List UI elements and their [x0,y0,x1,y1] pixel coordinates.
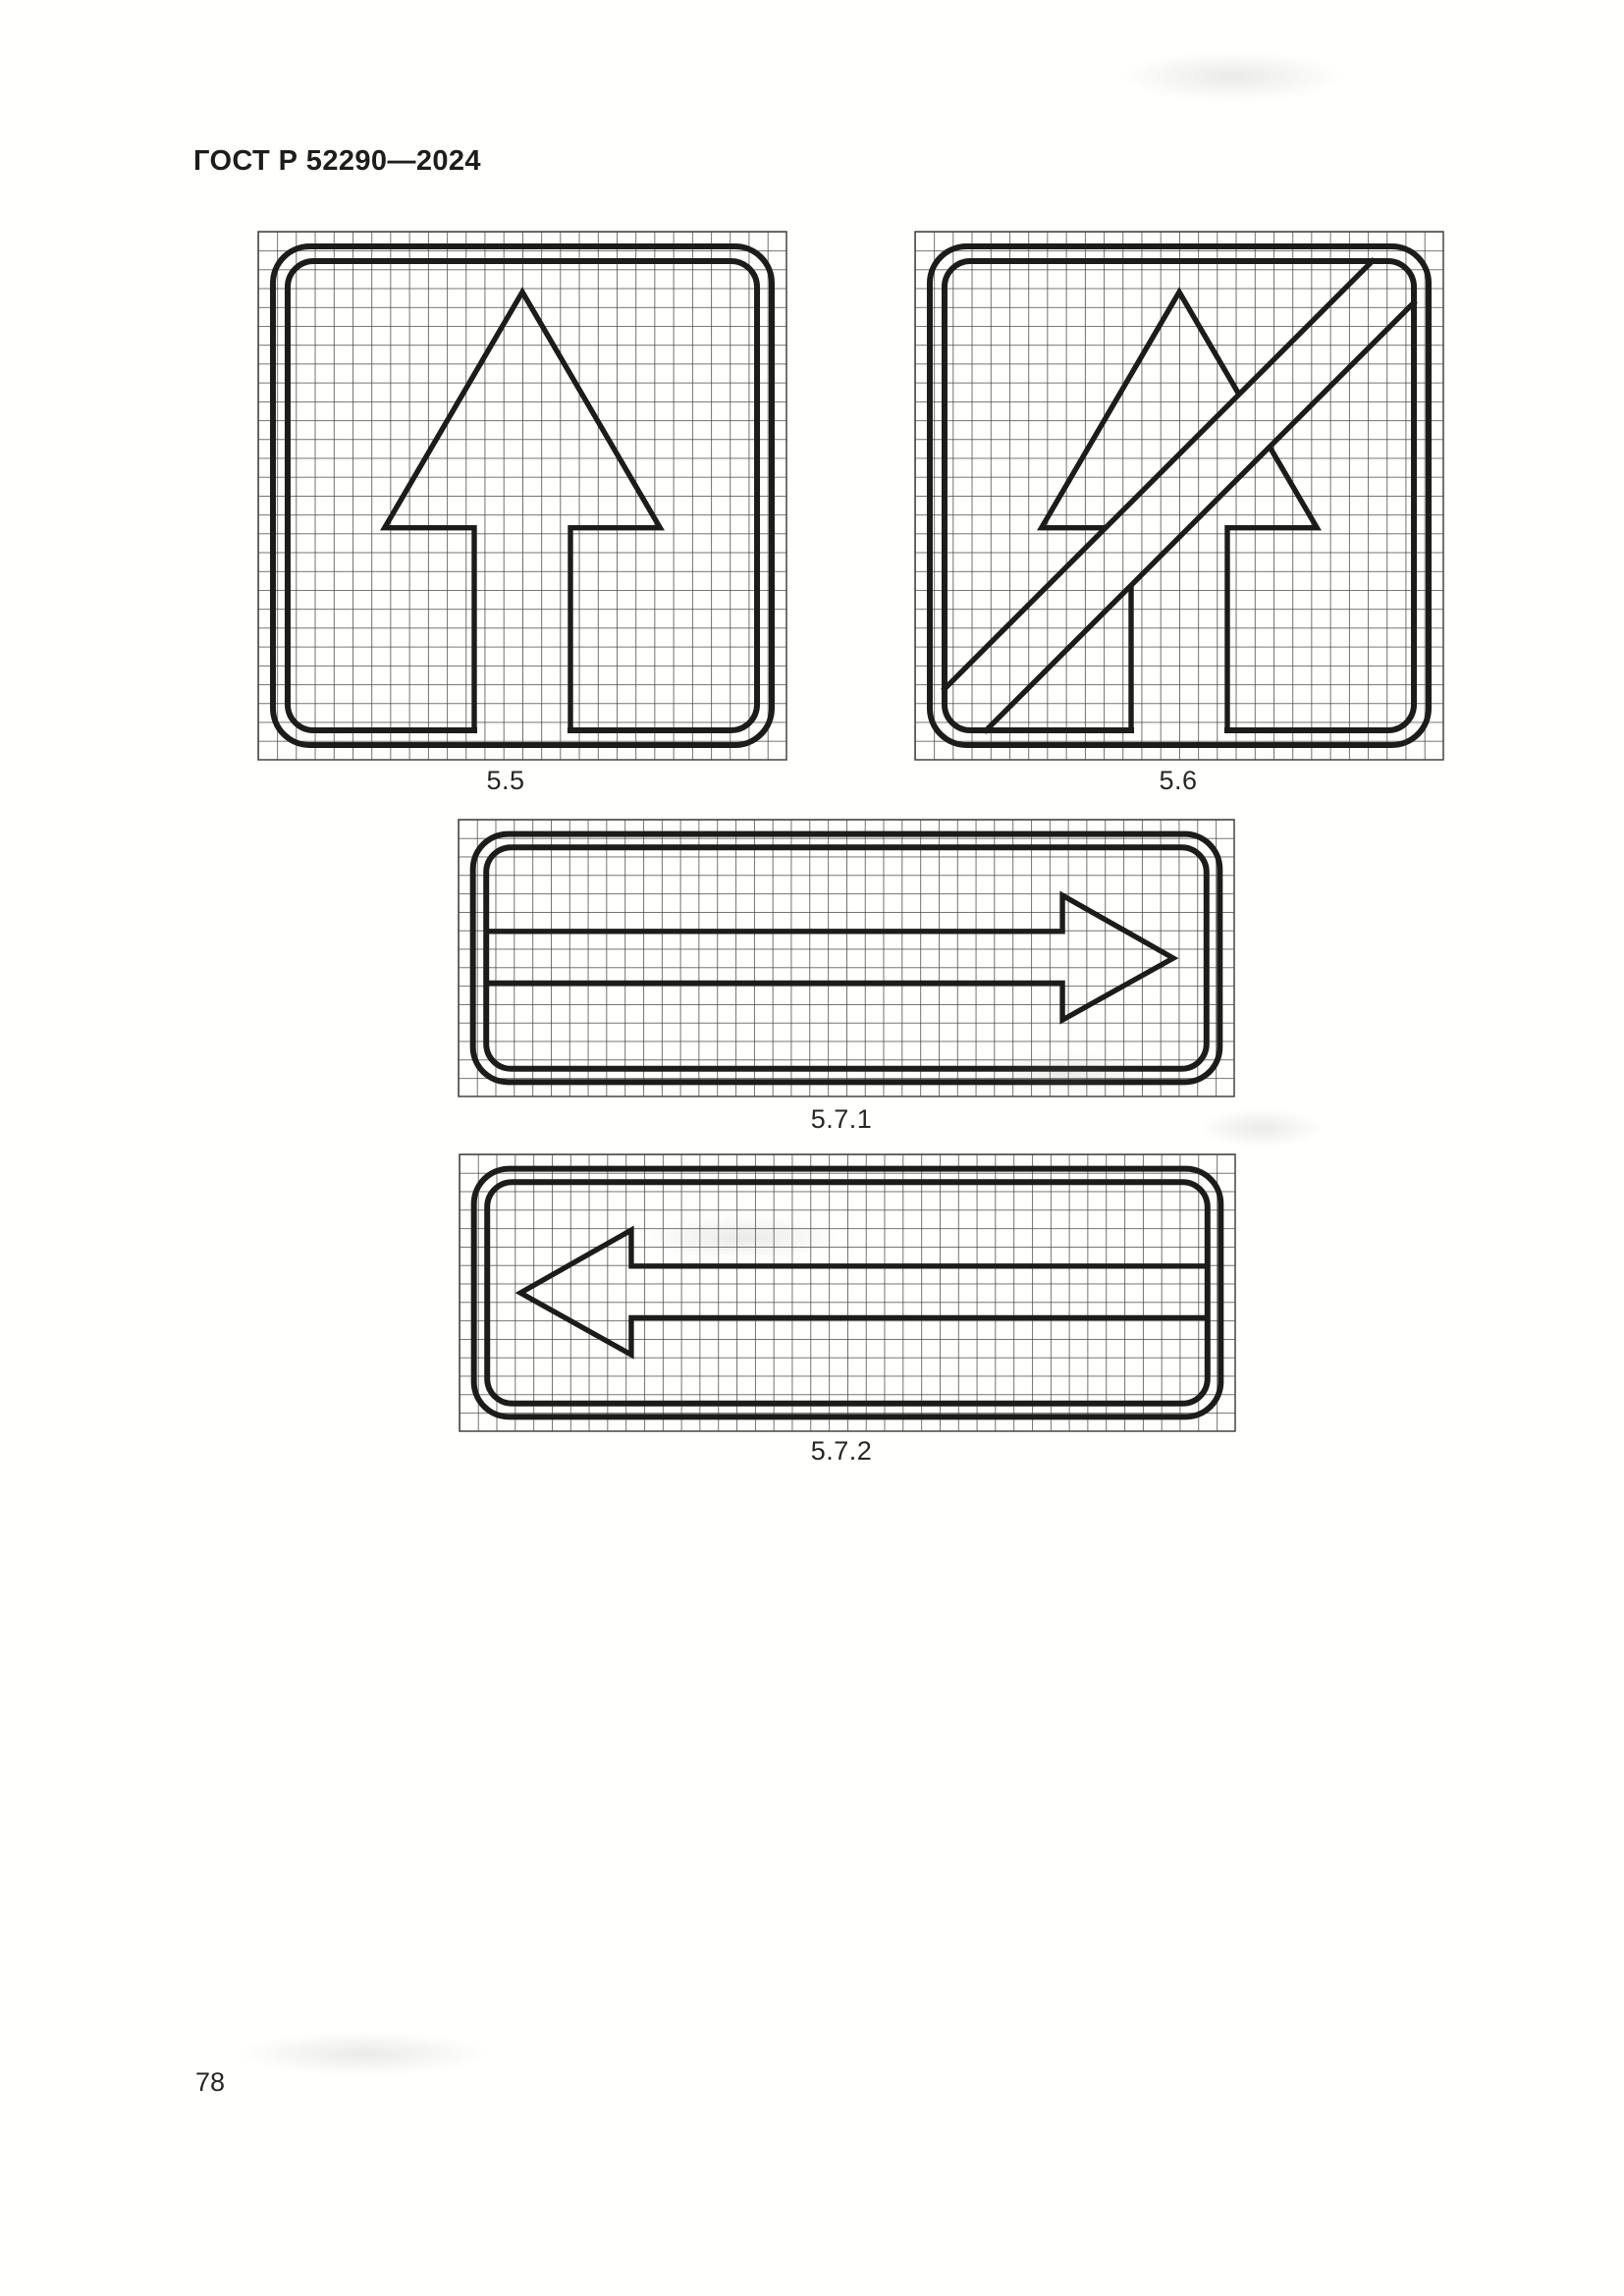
sign-5.6-figure [907,224,1451,768]
scan-smudge [1198,1109,1326,1147]
sign-5.5-figure [250,224,794,768]
sign-5.7.2-drawing [452,1147,1243,1439]
sign-5.7.1-figure [451,812,1242,1104]
page-number: 78 [195,2067,225,2098]
sign-caption: 5.7.2 [811,1436,873,1467]
module-grid [258,232,786,760]
module-grid [459,820,1234,1096]
sign-caption: 5.6 [1159,766,1197,796]
scan-smudge [1119,51,1345,102]
document-page: ГОСТ Р 52290—2024 5.55.65.7.15.7.2 78 [0,0,1624,2296]
sign-caption: 5.5 [486,766,524,796]
standard-number-header: ГОСТ Р 52290—2024 [193,145,481,178]
sign-5.7.2-figure [452,1147,1243,1439]
module-grid [915,232,1443,760]
sign-5.5-drawing [250,224,794,768]
scan-smudge [236,2032,491,2075]
sign-caption: 5.7.1 [811,1104,873,1135]
sign-5.7.1-drawing [451,812,1242,1104]
module-grid [460,1154,1235,1431]
sign-5.6-drawing [907,224,1451,768]
